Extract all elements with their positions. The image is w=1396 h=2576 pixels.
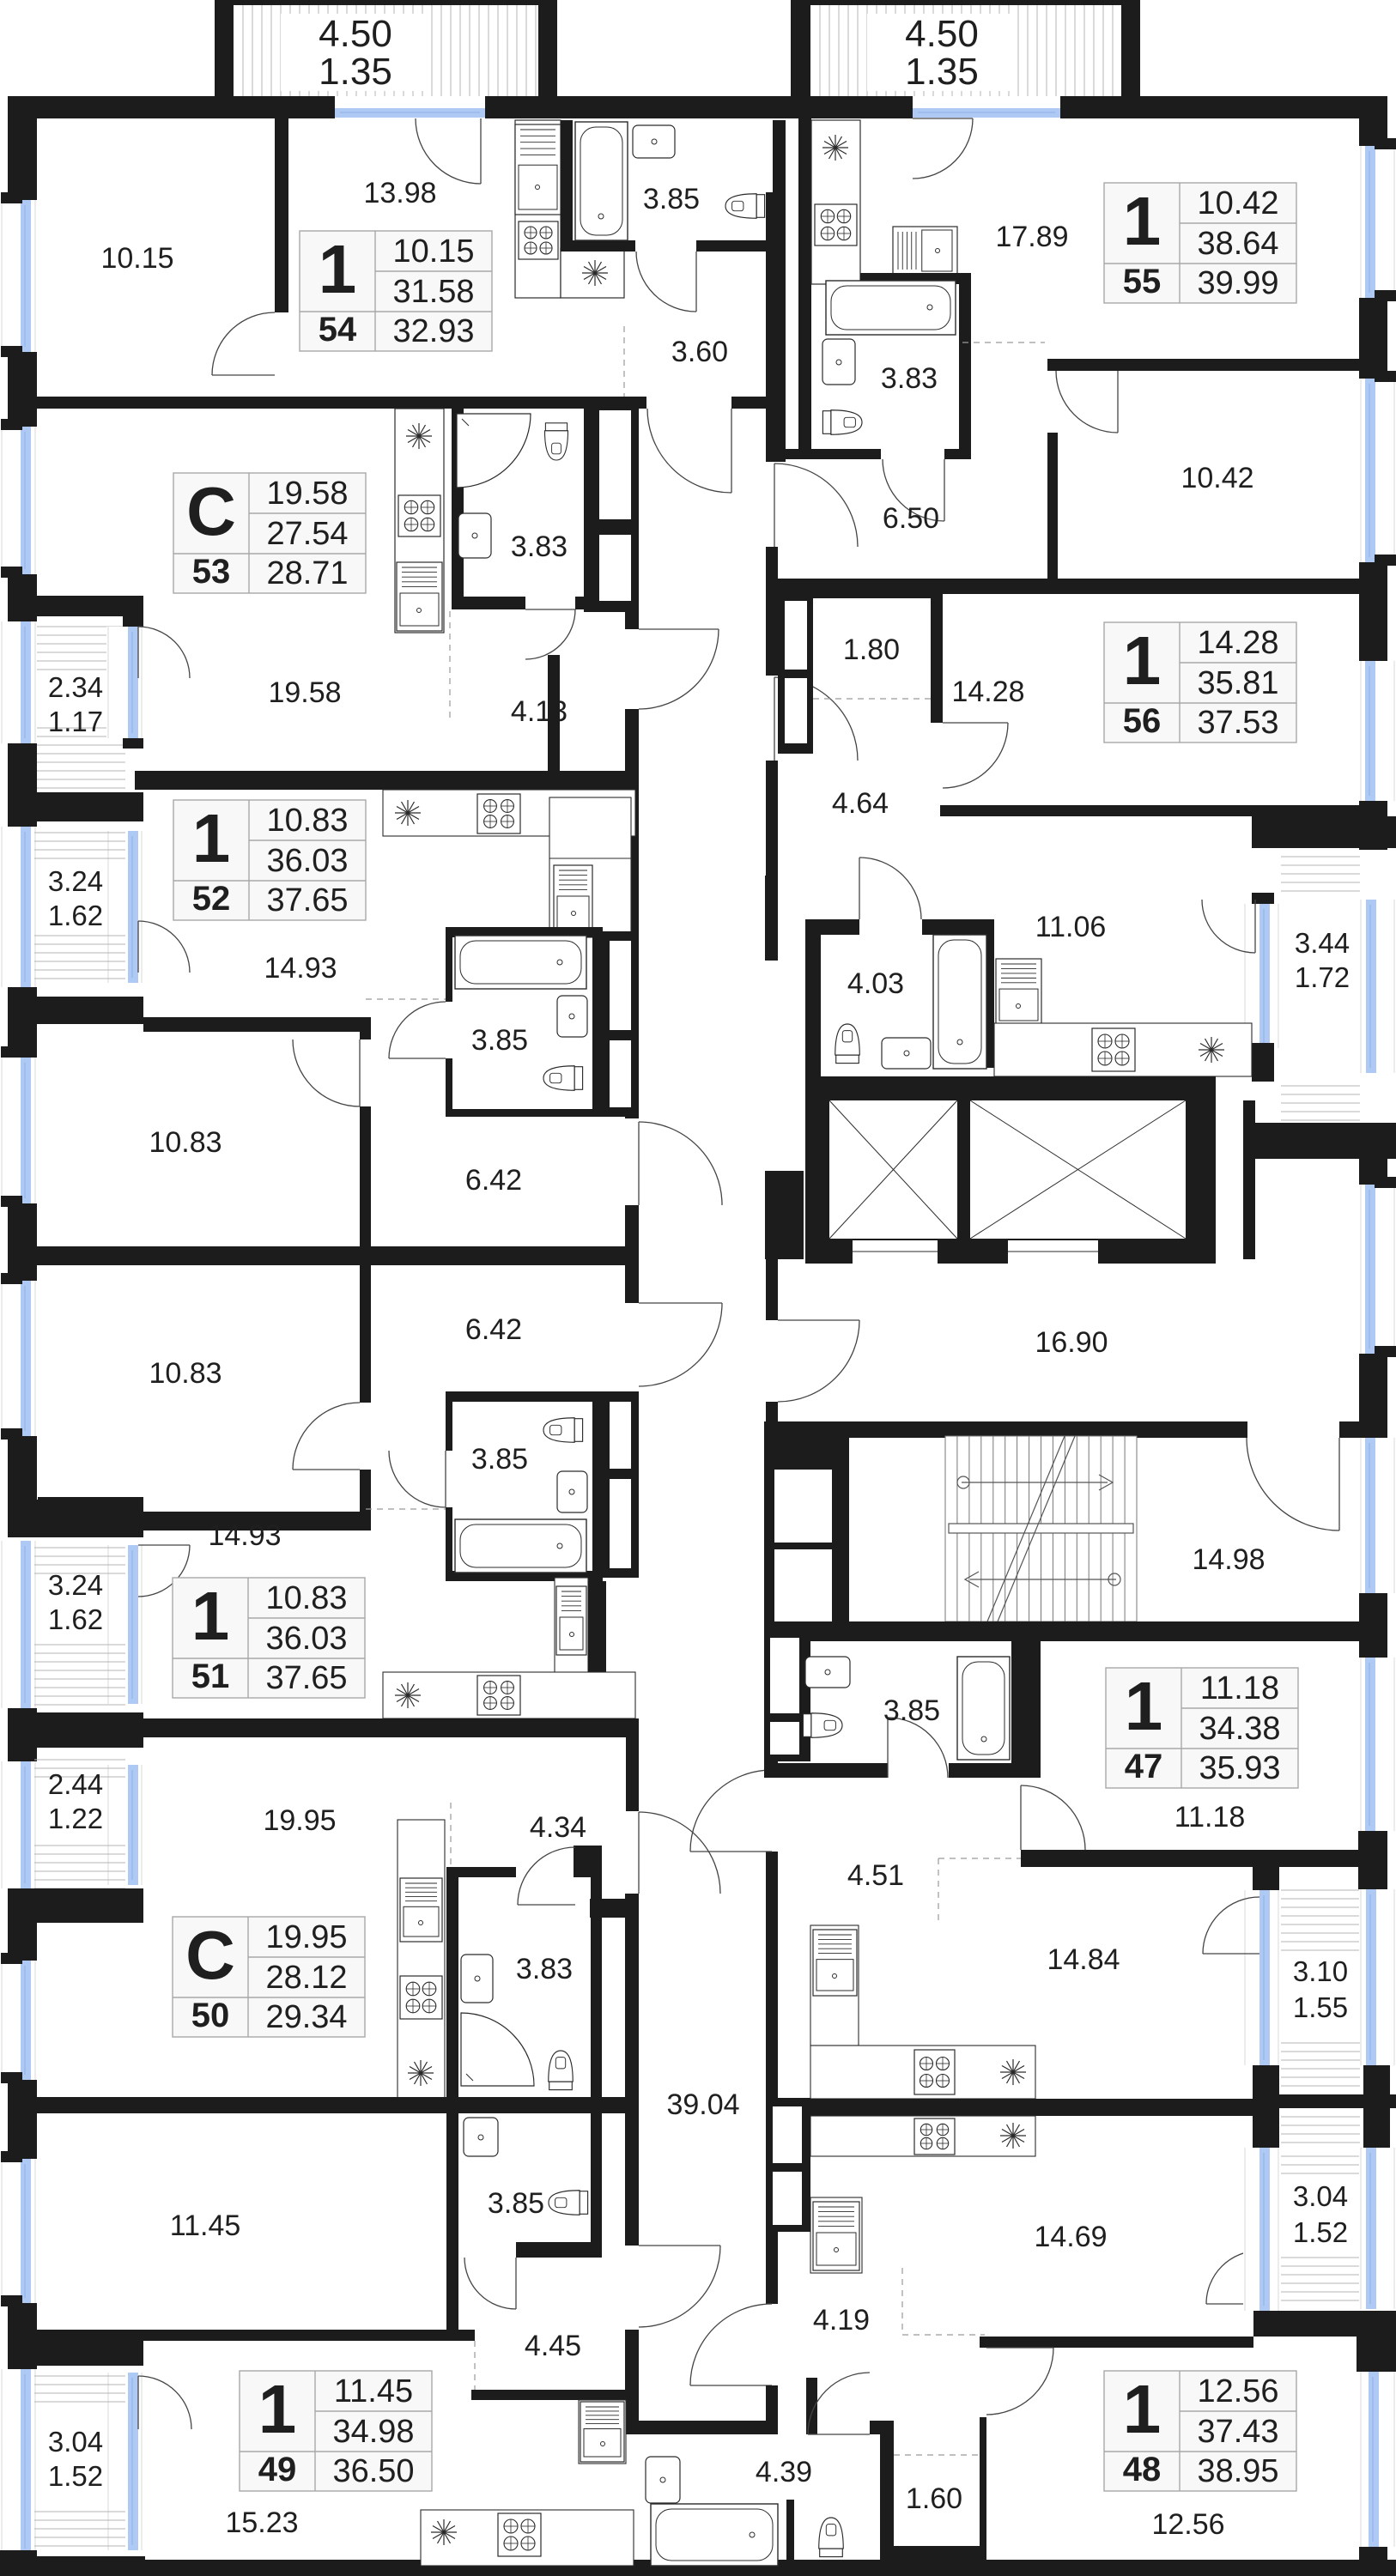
svg-text:1.35: 1.35 <box>905 51 979 93</box>
svg-text:1: 1 <box>1125 1668 1163 1744</box>
svg-text:12.56: 12.56 <box>1151 2508 1224 2541</box>
svg-text:37.43: 37.43 <box>1197 2414 1278 2450</box>
svg-text:1.62: 1.62 <box>48 1603 103 1635</box>
svg-text:14.98: 14.98 <box>1192 1543 1265 1576</box>
svg-text:3.04: 3.04 <box>48 2426 103 2458</box>
svg-text:1.35: 1.35 <box>319 51 392 93</box>
svg-text:15.23: 15.23 <box>225 2506 298 2539</box>
svg-text:10.83: 10.83 <box>266 803 348 839</box>
svg-text:16.90: 16.90 <box>1035 1326 1108 1359</box>
svg-text:3.85: 3.85 <box>488 2187 544 2220</box>
svg-text:34.38: 34.38 <box>1199 1711 1280 1747</box>
svg-text:39.04: 39.04 <box>666 2088 739 2121</box>
svg-text:38.64: 38.64 <box>1197 226 1278 262</box>
svg-text:56: 56 <box>1123 702 1162 740</box>
svg-text:3.85: 3.85 <box>883 1694 940 1727</box>
svg-text:4.50: 4.50 <box>319 13 392 55</box>
svg-text:14.93: 14.93 <box>264 952 337 985</box>
svg-text:6.42: 6.42 <box>465 1313 522 1346</box>
svg-text:14.93: 14.93 <box>208 1519 281 1552</box>
svg-text:29.34: 29.34 <box>265 1999 347 2035</box>
svg-text:6.42: 6.42 <box>465 1164 522 1197</box>
svg-text:1.55: 1.55 <box>1293 1991 1348 2023</box>
svg-text:14.28: 14.28 <box>951 676 1024 708</box>
svg-text:3.60: 3.60 <box>671 336 728 368</box>
svg-text:12.56: 12.56 <box>1197 2373 1278 2409</box>
svg-text:1: 1 <box>1123 183 1162 259</box>
svg-text:47: 47 <box>1125 1748 1163 1785</box>
svg-text:3.44: 3.44 <box>1295 927 1350 959</box>
svg-text:4.51: 4.51 <box>847 1859 904 1892</box>
svg-text:11.18: 11.18 <box>1200 1670 1279 1706</box>
svg-text:49: 49 <box>258 2451 297 2488</box>
svg-text:36.03: 36.03 <box>266 843 348 879</box>
svg-text:35.81: 35.81 <box>1197 665 1278 701</box>
svg-text:14.69: 14.69 <box>1034 2221 1107 2253</box>
svg-text:37.53: 37.53 <box>1197 705 1278 741</box>
svg-text:53: 53 <box>192 553 231 591</box>
svg-text:50: 50 <box>191 1997 230 2034</box>
svg-text:4.34: 4.34 <box>530 1811 586 1844</box>
svg-text:19.58: 19.58 <box>268 676 341 709</box>
svg-text:4.39: 4.39 <box>756 2456 812 2488</box>
svg-text:6.50: 6.50 <box>883 502 939 535</box>
svg-text:55: 55 <box>1123 263 1162 300</box>
svg-text:1: 1 <box>258 2371 297 2447</box>
svg-text:3.83: 3.83 <box>516 1953 573 1985</box>
svg-text:10.83: 10.83 <box>149 1357 222 1390</box>
svg-text:1.72: 1.72 <box>1295 961 1350 993</box>
svg-text:37.65: 37.65 <box>265 1660 347 1696</box>
svg-text:34.98: 34.98 <box>332 2414 414 2450</box>
svg-text:3.83: 3.83 <box>511 530 568 563</box>
svg-text:10.15: 10.15 <box>392 233 474 270</box>
svg-text:36.03: 36.03 <box>265 1621 347 1657</box>
svg-text:1: 1 <box>1123 622 1162 699</box>
svg-text:4.50: 4.50 <box>905 13 979 55</box>
svg-text:3.83: 3.83 <box>881 362 938 395</box>
svg-text:1: 1 <box>192 800 231 876</box>
svg-text:1.62: 1.62 <box>48 900 103 931</box>
svg-text:1.17: 1.17 <box>48 706 103 737</box>
svg-text:10.83: 10.83 <box>265 1580 347 1616</box>
svg-text:11.06: 11.06 <box>1035 911 1107 943</box>
svg-text:10.15: 10.15 <box>100 242 173 275</box>
svg-text:1.22: 1.22 <box>48 1803 103 1834</box>
svg-text:4.64: 4.64 <box>832 787 889 820</box>
svg-text:36.50: 36.50 <box>332 2453 414 2489</box>
svg-text:3.04: 3.04 <box>1293 2180 1348 2212</box>
svg-text:1: 1 <box>191 1578 230 1654</box>
svg-text:38.95: 38.95 <box>1197 2453 1278 2489</box>
svg-text:4.03: 4.03 <box>847 967 904 1000</box>
svg-text:11.18: 11.18 <box>1174 1801 1246 1834</box>
svg-text:27.54: 27.54 <box>266 516 348 552</box>
svg-text:10.83: 10.83 <box>149 1126 222 1159</box>
svg-text:28.12: 28.12 <box>265 1960 347 1996</box>
svg-text:1.60: 1.60 <box>906 2482 962 2515</box>
svg-text:14.84: 14.84 <box>1047 1943 1120 1976</box>
svg-text:48: 48 <box>1123 2451 1162 2488</box>
svg-text:17.89: 17.89 <box>995 221 1068 253</box>
svg-text:19.95: 19.95 <box>263 1804 336 1837</box>
svg-text:11.45: 11.45 <box>170 2209 241 2242</box>
svg-text:4.19: 4.19 <box>813 2304 870 2337</box>
svg-text:3.85: 3.85 <box>471 1024 528 1057</box>
svg-text:11.45: 11.45 <box>334 2373 413 2409</box>
svg-text:13.98: 13.98 <box>363 177 436 209</box>
svg-text:C: C <box>186 473 236 549</box>
svg-text:54: 54 <box>319 311 357 349</box>
svg-text:3.10: 3.10 <box>1293 1955 1348 1987</box>
svg-text:19.95: 19.95 <box>265 1919 347 1955</box>
svg-text:10.42: 10.42 <box>1181 462 1253 494</box>
svg-text:32.93: 32.93 <box>392 313 474 349</box>
svg-text:39.99: 39.99 <box>1197 265 1278 301</box>
svg-text:C: C <box>185 1917 235 1993</box>
svg-text:1.52: 1.52 <box>48 2460 103 2492</box>
svg-text:31.58: 31.58 <box>392 274 474 310</box>
svg-text:1: 1 <box>319 231 357 307</box>
svg-text:51: 51 <box>191 1658 230 1695</box>
svg-text:3.85: 3.85 <box>643 183 700 215</box>
svg-text:4.45: 4.45 <box>525 2330 581 2362</box>
svg-text:2.44: 2.44 <box>48 1768 103 1800</box>
svg-text:28.71: 28.71 <box>266 555 348 591</box>
svg-text:3.85: 3.85 <box>471 1443 528 1476</box>
svg-text:3.24: 3.24 <box>48 865 103 897</box>
svg-text:1.52: 1.52 <box>1293 2216 1348 2248</box>
svg-text:10.42: 10.42 <box>1197 185 1278 221</box>
svg-text:1: 1 <box>1123 2371 1162 2447</box>
svg-text:1.80: 1.80 <box>843 633 900 666</box>
svg-text:14.28: 14.28 <box>1197 625 1278 661</box>
svg-text:2.34: 2.34 <box>48 671 103 703</box>
svg-text:52: 52 <box>192 880 231 918</box>
svg-text:19.58: 19.58 <box>266 476 348 512</box>
svg-text:35.93: 35.93 <box>1199 1750 1280 1786</box>
svg-text:37.65: 37.65 <box>266 882 348 918</box>
svg-text:3.24: 3.24 <box>48 1569 103 1601</box>
